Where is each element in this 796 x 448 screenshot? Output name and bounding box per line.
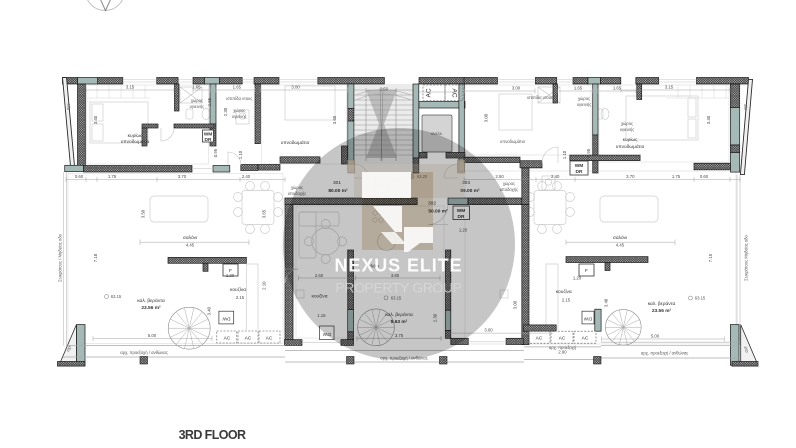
svg-text:υπνοδωμάτιο: υπνοδωμάτιο [616, 143, 645, 150]
svg-text:F: F [585, 268, 588, 274]
svg-text:0.95: 0.95 [586, 148, 591, 157]
svg-text:1.10: 1.10 [562, 150, 567, 159]
svg-text:DW: DW [584, 316, 592, 322]
svg-text:2.40: 2.40 [242, 174, 251, 179]
svg-text:63.15: 63.15 [695, 296, 706, 301]
svg-text:χώρος: χώρος [191, 98, 203, 103]
svg-text:AC: AC [266, 336, 273, 342]
svg-text:AC: AC [426, 88, 433, 97]
svg-text:χώρος: χώρος [621, 121, 633, 126]
svg-text:5.00: 5.00 [651, 334, 660, 339]
svg-text:4.45: 4.45 [186, 242, 195, 247]
svg-text:PROPERTY GROUP: PROPERTY GROUP [335, 280, 461, 296]
svg-text:σχε: σχε [742, 103, 748, 110]
svg-text:3.65: 3.65 [262, 209, 267, 218]
svg-text:3.00: 3.00 [484, 328, 493, 333]
svg-text:1.20: 1.20 [226, 273, 235, 278]
svg-text:σχε: σχε [65, 103, 71, 110]
svg-text:χώρος: χώρος [233, 108, 245, 113]
svg-text:NEXUS ELITE: NEXUS ELITE [335, 256, 463, 276]
svg-text:υγιεινής: υγιεινής [232, 114, 247, 119]
svg-text:63.15: 63.15 [111, 294, 122, 299]
svg-text:2.15: 2.15 [236, 295, 245, 300]
svg-text:2.90: 2.90 [558, 349, 567, 354]
svg-text:κυρίως: κυρίως [623, 137, 639, 143]
svg-text:αρχ. προεξοχή / ανθώνας: αρχ. προεξοχή / ανθώνας [641, 351, 688, 356]
svg-text:υπνοδωμάτιο: υπνοδωμάτιο [281, 139, 310, 146]
svg-text:5.00: 5.00 [148, 333, 157, 338]
svg-text:AC: AC [559, 336, 566, 342]
svg-text:υπνοδωμάτιο: υπνοδωμάτιο [121, 138, 150, 145]
svg-text:3.60: 3.60 [332, 115, 337, 124]
svg-text:καλ. βεράντα: καλ. βεράντα [648, 300, 676, 307]
svg-text:3.00: 3.00 [513, 300, 518, 309]
svg-text:Σωκράτους / Μηδείας οδο: Σωκράτους / Μηδείας οδο [58, 233, 63, 282]
svg-text:0.60: 0.60 [75, 174, 84, 179]
svg-text:3.00: 3.00 [512, 86, 521, 91]
svg-text:σαλόνι: σαλόνι [613, 234, 627, 241]
svg-text:7.18: 7.18 [93, 253, 98, 262]
svg-text:1.20: 1.20 [573, 276, 582, 281]
svg-text:1.65: 1.65 [574, 86, 583, 91]
svg-text:σαλόνι: σαλόνι [183, 234, 197, 241]
svg-text:1.65: 1.65 [613, 86, 622, 91]
svg-text:ιστιπίδα ντους: ιστιπίδα ντους [226, 96, 252, 101]
svg-text:DW: DW [222, 316, 230, 322]
svg-text:2.30: 2.30 [223, 107, 228, 116]
svg-text:3.00: 3.00 [291, 85, 300, 90]
svg-text:υγιεινής: υγιεινής [577, 102, 592, 107]
svg-text:3.40: 3.40 [93, 115, 98, 124]
svg-text:κουζίνα: κουζίνα [556, 289, 572, 295]
svg-text:υποδοχής: υποδοχής [500, 187, 519, 192]
svg-text:0.95: 0.95 [213, 148, 218, 157]
svg-text:1.10: 1.10 [238, 150, 243, 159]
svg-text:3.15: 3.15 [665, 85, 674, 90]
svg-text:AC: AC [536, 336, 543, 342]
svg-text:3.40: 3.40 [603, 298, 608, 307]
svg-text:AC: AC [451, 88, 458, 97]
svg-text:1.65: 1.65 [233, 85, 242, 90]
svg-text:1.65: 1.65 [192, 85, 201, 90]
svg-text:αρχ. προεξοχή / ανθώνας: αρχ. προεξοχή / ανθώνας [120, 350, 167, 355]
svg-text:DR: DR [205, 137, 212, 143]
svg-text:3.00: 3.00 [484, 113, 489, 122]
svg-text:Σωκράτους Μηδείας οδο: Σωκράτους Μηδείας οδο [744, 234, 749, 280]
svg-text:23.56 m²: 23.56 m² [652, 308, 672, 314]
svg-text:7.15: 7.15 [708, 253, 713, 262]
svg-text:1.75: 1.75 [672, 174, 681, 179]
svg-text:WM: WM [204, 131, 213, 137]
svg-text:αρχ. προεξοχή: αρχ. προεξοχή [549, 345, 577, 350]
svg-text:καλ. βεράντα: καλ. βεράντα [137, 297, 165, 304]
svg-text:2.40: 2.40 [551, 174, 560, 179]
svg-text:κυρίως: κυρίως [128, 133, 144, 139]
svg-text:κουζίνα: κουζίνα [230, 287, 246, 293]
svg-text:3.70: 3.70 [178, 174, 187, 179]
svg-text:υπνοδωμάτιο: υπνοδωμάτιο [500, 139, 526, 144]
svg-text:4.45: 4.45 [616, 242, 625, 247]
svg-text:AC: AC [245, 336, 252, 342]
svg-text:1.65: 1.65 [207, 97, 212, 106]
svg-text:AC: AC [582, 336, 589, 342]
svg-text:2.10: 2.10 [262, 281, 267, 290]
svg-text:3.70: 3.70 [626, 174, 635, 179]
svg-text:3.40: 3.40 [706, 115, 711, 124]
svg-text:DR: DR [576, 169, 583, 175]
svg-text:3.15: 3.15 [126, 85, 135, 90]
svg-text:1.75: 1.75 [108, 174, 117, 179]
svg-text:WM: WM [575, 163, 584, 169]
svg-text:3.50: 3.50 [141, 209, 146, 218]
svg-text:χώρος: χώρος [503, 181, 515, 186]
svg-text:3RD FLOOR: 3RD FLOOR [179, 428, 246, 442]
svg-text:υγιεινής: υγιεινής [190, 104, 205, 109]
svg-text:υγιεινής: υγιεινής [620, 127, 635, 132]
svg-text:χώρος: χώρος [578, 96, 590, 101]
svg-text:3.40: 3.40 [206, 306, 211, 315]
svg-text:2.15: 2.15 [562, 298, 571, 303]
svg-text:AC: AC [224, 336, 231, 342]
svg-text:2.50: 2.50 [380, 87, 389, 92]
svg-text:ιστιπίδα ντους: ιστιπίδα ντους [527, 95, 553, 100]
svg-text:0.60: 0.60 [700, 174, 709, 179]
svg-text:2.50: 2.50 [495, 174, 504, 179]
svg-text:23.56 m²: 23.56 m² [141, 305, 161, 311]
